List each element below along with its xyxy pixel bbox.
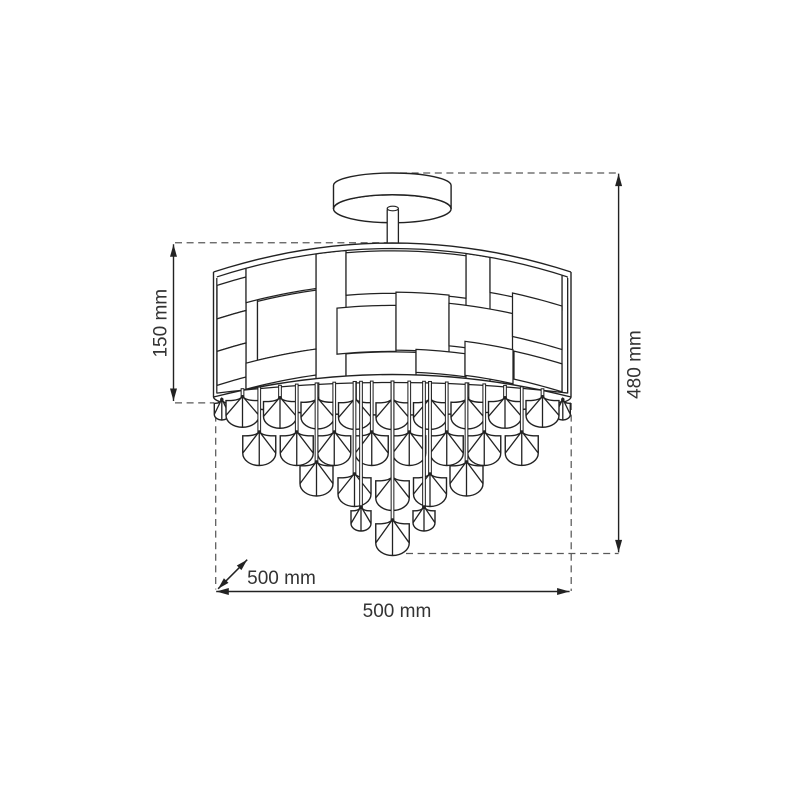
svg-text:500 mm: 500 mm [247,568,316,589]
svg-text:150 mm: 150 mm [151,289,172,358]
svg-text:500 mm: 500 mm [363,601,432,622]
svg-text:480 mm: 480 mm [624,330,645,399]
